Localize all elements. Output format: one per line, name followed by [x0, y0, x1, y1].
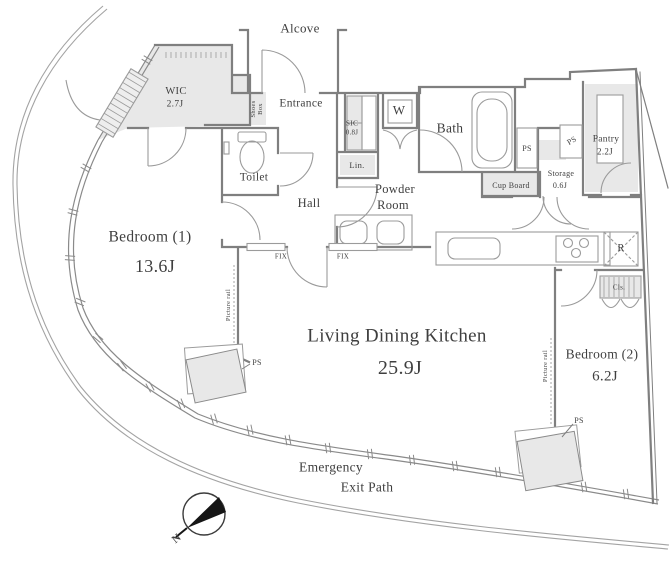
hall-label: Hall [298, 197, 321, 210]
fix-panels [247, 244, 377, 251]
sic-size-label: 0.8J [346, 130, 359, 137]
floor-plan: Alcove WIC 2.7J Shoes Box Entrance SIC 0… [0, 0, 672, 572]
fix-label-right: FIX [337, 254, 349, 261]
ps-duct-bedroom1 [184, 344, 250, 403]
floor-plan-drawing [0, 0, 672, 572]
bathtub [472, 92, 512, 168]
bedroom2-name-label: Bedroom (2) [566, 347, 639, 361]
bath-label: Bath [437, 121, 464, 135]
ldk-name-label: Living Dining Kitchen [307, 327, 486, 346]
compass [176, 493, 226, 537]
kitchen-sink [448, 238, 500, 259]
pantry-size-label: 2.2J [597, 148, 613, 157]
hall-ldk-door [287, 247, 327, 287]
ps-duct-bedroom2 [515, 424, 583, 491]
cup-board-label: Cup Board [492, 182, 530, 190]
toilet-fixture [224, 132, 266, 173]
pantry-name-label: Pantry [593, 135, 620, 145]
ps-label-bath: PS [522, 145, 532, 153]
wic-size-label: 2.7J [167, 100, 184, 110]
washer-label: W [393, 104, 406, 117]
kitchen-counter [436, 232, 610, 265]
wic-door [148, 128, 186, 166]
wic-name-label: WIC [165, 87, 186, 98]
powder-room-label-1: Powder [375, 183, 415, 196]
fix-label-left: FIX [275, 254, 287, 261]
storage-name-label: Storage [548, 170, 575, 178]
kitchen-corridor-doors [512, 197, 589, 229]
bedroom2-door [561, 270, 597, 306]
emergency-path-label-2: Exit Path [341, 480, 394, 494]
toilet-door [280, 153, 313, 186]
washer-doors [383, 130, 417, 149]
ps-label-bedroom1: PS [252, 359, 262, 367]
linen-label: Lin. [349, 161, 364, 170]
picture-rail-label-1: Picture rail [226, 289, 233, 321]
ps-label-bedroom2: PS [574, 417, 584, 425]
toilet-label: Toilet [240, 172, 268, 184]
bath-door [420, 130, 462, 172]
sic-name-label: SIC [346, 119, 359, 127]
powder-room-label-2: Room [377, 199, 409, 212]
entrance-door [262, 50, 305, 93]
bedroom2-size-label: 6.2J [592, 370, 618, 385]
closet-label: Cls. [613, 285, 625, 292]
refrigerator-label: R [618, 244, 625, 254]
entrance-label: Entrance [279, 98, 322, 110]
shoes-box-label-2: Box [258, 103, 265, 115]
emergency-path-label-1: Emergency [299, 460, 363, 474]
picture-rail-label-2: Picture rail [543, 350, 550, 382]
bedroom1-size-label: 13.6J [135, 257, 175, 275]
window-door [66, 80, 100, 120]
storage-size-label: 0.6J [553, 182, 567, 190]
ldk-size-label: 25.9J [378, 358, 422, 378]
bedroom1-door [222, 202, 260, 240]
alcove-label: Alcove [280, 22, 319, 35]
bedroom1-name-label: Bedroom (1) [109, 229, 192, 245]
compass-needle [187, 497, 226, 528]
